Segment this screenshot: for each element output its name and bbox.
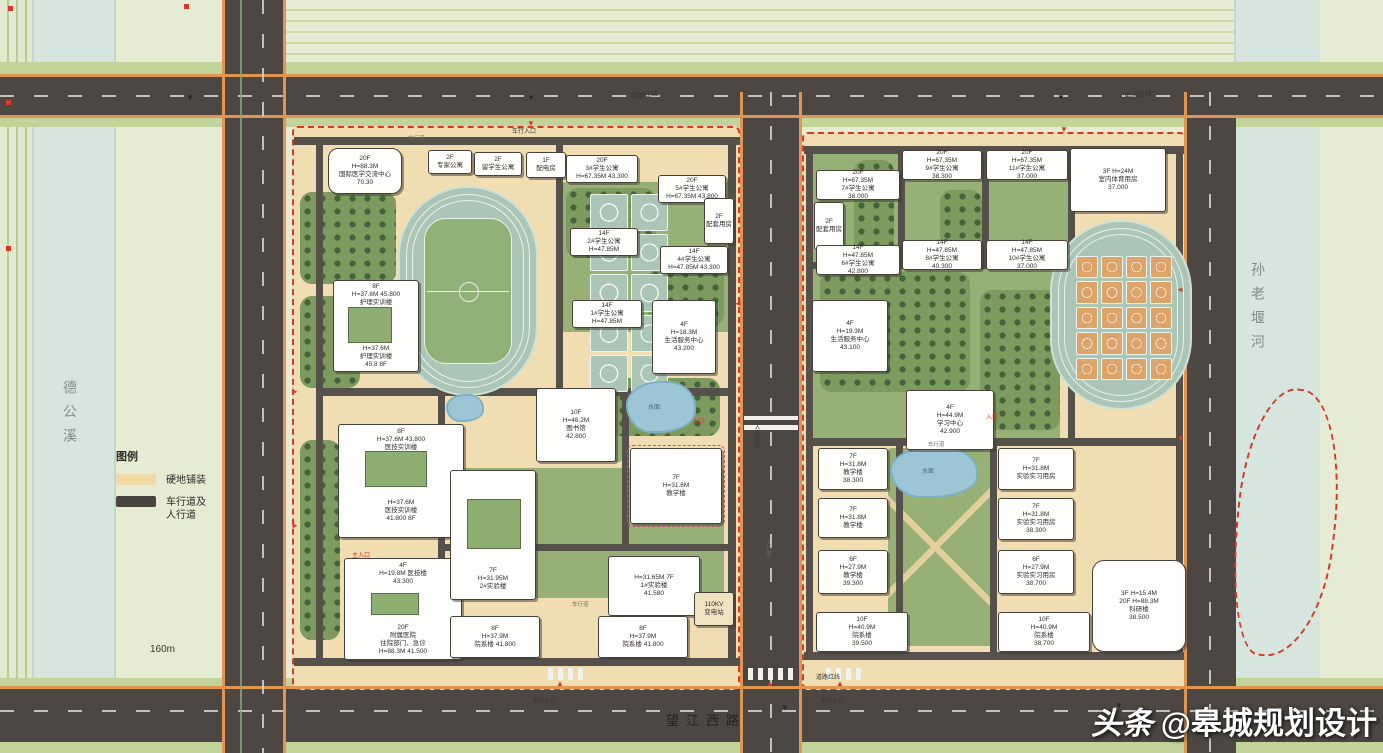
entrance-arrow-icon: ◄ — [1176, 286, 1184, 294]
building-dept-west-b: 8F H=37.9M 院系楼 41.800 — [598, 616, 688, 658]
road-arrow-icon: ▼ — [527, 94, 535, 102]
courtyard — [371, 593, 419, 615]
river-label-east: 孙老堰河 — [1248, 262, 1268, 432]
watermark: 头条@皋城规划设计 — [1091, 698, 1377, 743]
boundary-marker-icon — [184, 4, 189, 9]
north-road-edge-line — [0, 74, 1383, 77]
watermark-brand: 头条 — [1091, 706, 1153, 741]
legend-item-roads: 车行道及 人行道 — [116, 496, 246, 523]
legend-item-paving: 硬地铺装 — [116, 474, 246, 488]
entrance-arrow-icon: ► — [291, 522, 299, 530]
entrance-arrow-icon: ▲ — [556, 680, 564, 688]
entrance-arrow-icon: ▼ — [1060, 126, 1068, 134]
basketball-court — [1076, 307, 1098, 329]
legend-label-paving: 硬地铺装 — [166, 474, 206, 488]
basketball-court — [1101, 332, 1123, 354]
middle-road-edge-line — [799, 92, 802, 753]
building-label: 8F H=37.6M 43.800 医技实训楼 — [339, 428, 463, 452]
lane-label: 车行道 — [408, 134, 425, 142]
basketball-court — [1076, 256, 1098, 278]
building-label: H=37.6M 护理实训楼 45.8 8F — [334, 345, 418, 369]
vehicle-entrance-label: 车行入口 — [532, 696, 556, 705]
grove — [300, 192, 396, 284]
entrance-arrow-icon: ▼ — [527, 120, 535, 128]
west-road-median — [240, 0, 242, 753]
walk-label: 人行道 — [764, 540, 772, 557]
building-teaching-east-1: 7F H=31.8M 教学楼 38.300 — [818, 448, 888, 490]
east-road-lane-dash — [1209, 92, 1211, 753]
basketball-court — [590, 194, 628, 231]
courtyard — [467, 499, 521, 549]
basketball-court — [1126, 256, 1148, 278]
east-road-edge-line — [1184, 92, 1187, 753]
west-road-lane-dash — [262, 0, 264, 753]
middle-road-edge-line — [740, 92, 743, 753]
road-arrow-icon: ▼ — [186, 94, 194, 102]
west-road — [222, 0, 286, 753]
river-label-west: 德公溪 — [60, 380, 80, 510]
main-entrance-label: 主入口 — [352, 550, 370, 559]
legend-swatch-roads — [116, 496, 156, 507]
vehicle-entrance-label: 车行入口 — [820, 696, 844, 705]
campus-road — [316, 137, 323, 666]
entrance-arrow-icon: ▲ — [766, 680, 774, 688]
building-lab-1: H=31.65M 7F 1#实验楼 41.580 — [608, 556, 700, 616]
site-plan: 20F H=88.3M 国际医学交流中心 70.30 2F 专家公寓 2F 留学… — [0, 0, 1383, 753]
basketball-court — [1150, 358, 1172, 380]
entrance-label: 入口 — [692, 416, 704, 425]
building-support-house-west: 2F 配套用房 — [704, 198, 734, 244]
west-road-edge-line — [283, 0, 286, 753]
basketball-court — [1126, 332, 1148, 354]
water-label: 水面 — [922, 466, 934, 475]
pond-small-west — [446, 394, 484, 422]
building-student-apt-7: 20F H=67.35M 7#学生公寓 38.000 — [816, 170, 900, 200]
building-intl-student-apartment: 2F 留学生公寓 — [474, 152, 522, 176]
building-label: H=37.6M 医技实训楼 41.800 8F — [339, 499, 463, 523]
campus-road — [806, 146, 813, 660]
road-arrow-icon: ▼ — [781, 704, 789, 712]
building-teaching-east-3: 6F H=27.9M 教学楼 39.300 — [818, 550, 888, 594]
basketball-court — [1126, 281, 1148, 303]
west-road-edge-line — [222, 0, 225, 753]
boundary-marker-icon — [6, 246, 11, 251]
lane-label: 车行道 — [928, 440, 945, 448]
building-dept-west-a: 8F H=37.9M 院系楼 41.800 — [450, 616, 540, 658]
road-arrow-icon: ▼ — [1057, 94, 1065, 102]
building-lab-practice-3: 6F H=27.9M 实验实习用房 38.700 — [998, 550, 1074, 594]
basketball-court — [1101, 358, 1123, 380]
building-student-apt-11: 20F H=67.35M 11#学生公寓 37.000 — [986, 150, 1068, 180]
building-learning-center: 4F H=44.9M 学习中心 42.900 — [906, 390, 994, 450]
entrance-label: 入口 — [986, 412, 998, 421]
north-road-edge-line — [0, 115, 1383, 118]
building-support-house-east: 2F 配套用房 — [814, 202, 844, 250]
entrance-arrow-icon: ► — [291, 388, 299, 396]
basketball-courts-east — [1076, 256, 1172, 380]
building-student-apt-3: 20F 3#学生公寓 H=67.35M 43.300 — [566, 155, 638, 183]
building-student-apt-2: 14F 2#学生公寓 H=47.85M — [570, 228, 638, 256]
south-road-verge-bottom — [0, 742, 1383, 753]
building-lab-practice-1: 7F H=31.8M 实验实习用房 — [998, 448, 1074, 490]
pond-library — [626, 381, 696, 433]
building-student-apt-4: 14F 4#学生公寓 H=47.85M 43.300 — [660, 246, 728, 274]
basketball-court — [1126, 307, 1148, 329]
water-label: 水面 — [648, 402, 660, 411]
courtyard — [365, 451, 427, 487]
legend: 图例 硬地铺装 车行道及 人行道 — [116, 448, 246, 531]
campus-road — [622, 396, 629, 551]
watermark-handle: @皋城规划设计 — [1161, 706, 1377, 741]
building-life-service-east: 4F H=19.3M 生活服务中心 43.100 — [812, 300, 888, 372]
basketball-court — [1076, 358, 1098, 380]
building-label: 7F H=31.95M 2#实验楼 — [451, 567, 535, 591]
building-label: 4F H=19.8M 医技楼 43.300 — [345, 562, 461, 586]
scale-label: 160m — [150, 644, 175, 655]
basketball-court — [1150, 281, 1172, 303]
building-life-service-west: 4F H=18.3M 生活服务中心 43.200 — [652, 300, 716, 374]
basketball-court — [1150, 256, 1172, 278]
building-dept-east-1: 10F H=40.9M 院系楼 39.500 — [816, 612, 908, 652]
basketball-court — [1076, 332, 1098, 354]
basketball-court — [1126, 358, 1148, 380]
legend-swatch-paving — [116, 474, 156, 485]
building-nursing-training: 8F H=37.6M 45.800 护理实训楼 H=37.6M 护理实训楼 45… — [333, 280, 419, 372]
basketball-court — [1150, 307, 1172, 329]
lane-label: 车行道 — [572, 600, 589, 608]
campus-road — [294, 137, 740, 145]
building-library: 10F H=46.2M 图书馆 42.800 — [536, 388, 616, 462]
building-power-room: 1F 配电房 — [526, 152, 566, 178]
building-lab-2: 7F H=31.95M 2#实验楼 — [450, 470, 536, 600]
road-label-south: 望江西路 — [666, 710, 746, 729]
basketball-court — [1101, 256, 1123, 278]
north-road-lane-dash — [0, 95, 1383, 97]
soccer-field-west — [424, 218, 512, 364]
building-teaching-west: 7F H=31.6M 教学楼 — [630, 448, 722, 524]
campus-road — [990, 446, 997, 658]
building-label: 8F H=37.6M 45.800 护理实训楼 — [334, 283, 418, 307]
basketball-court — [1101, 307, 1123, 329]
building-student-apt-8: 14F H=47.85M 8#学生公寓 40.300 — [902, 240, 982, 270]
building-substation: 110KV 变电站 — [694, 592, 734, 626]
building-medtech-training: 8F H=37.6M 43.800 医技实训楼 H=37.6M 医技实训楼 41… — [338, 424, 464, 538]
courtyard — [348, 307, 392, 343]
legend-label-roads: 车行道及 人行道 — [166, 496, 206, 523]
crosswalk — [548, 668, 586, 680]
building-student-apt-6: 14F H=47.85M 6#学生公寓 42.800 — [816, 245, 900, 275]
boundary-marker-icon — [6, 100, 11, 105]
footbridge-label: 人行连廊 — [752, 424, 761, 448]
building-lab-practice-2: 7F H=31.8M 实验实习用房 38.300 — [998, 498, 1074, 540]
basketball-court — [1101, 281, 1123, 303]
building-student-apt-9: 20F H=67.35M 9#学生公寓 38.300 — [902, 150, 982, 180]
building-teaching-east-2: 7F H=31.8M 教学楼 — [818, 498, 888, 538]
entrance-arrow-icon: ◄ — [1176, 434, 1184, 442]
boundary-marker-icon — [8, 6, 13, 11]
building-expert-apartment: 2F 专家公寓 — [428, 150, 472, 174]
basketball-court — [1150, 332, 1172, 354]
building-label: 20F 附属医院 住院部门、急诊 H=88.3M 41.500 — [345, 624, 461, 657]
basketball-court — [1076, 281, 1098, 303]
legend-title: 图例 — [116, 448, 246, 464]
running-track-west — [398, 186, 538, 396]
building-hospital-complex: 4F H=19.8M 医技楼 43.300 20F 附属医院 住院部门、急诊 H… — [344, 558, 462, 660]
building-research: 3F H=15.4M 20F H=88.3M 科研楼 38.500 — [1092, 560, 1186, 652]
basketball-court — [590, 355, 628, 392]
building-student-apt-1: 14F 1#学生公寓 H=47.85M — [572, 300, 642, 328]
building-dept-east-2: 10F H=40.9M 院系楼 38.700 — [998, 612, 1090, 652]
entrance-arrow-icon: ▲ — [836, 680, 844, 688]
south-road-edge-line — [0, 686, 1383, 689]
building-student-apt-10: 14F H=47.85M 10#学生公寓 37.000 — [986, 240, 1068, 270]
entrance-arrow-icon: ◄ — [734, 300, 742, 308]
building-intl-medical-center: 20F H=88.3M 国际医学交流中心 70.30 — [328, 148, 402, 194]
building-indoor-sports: 3F H=24M 室内体育用房 37.000 — [1070, 148, 1166, 212]
